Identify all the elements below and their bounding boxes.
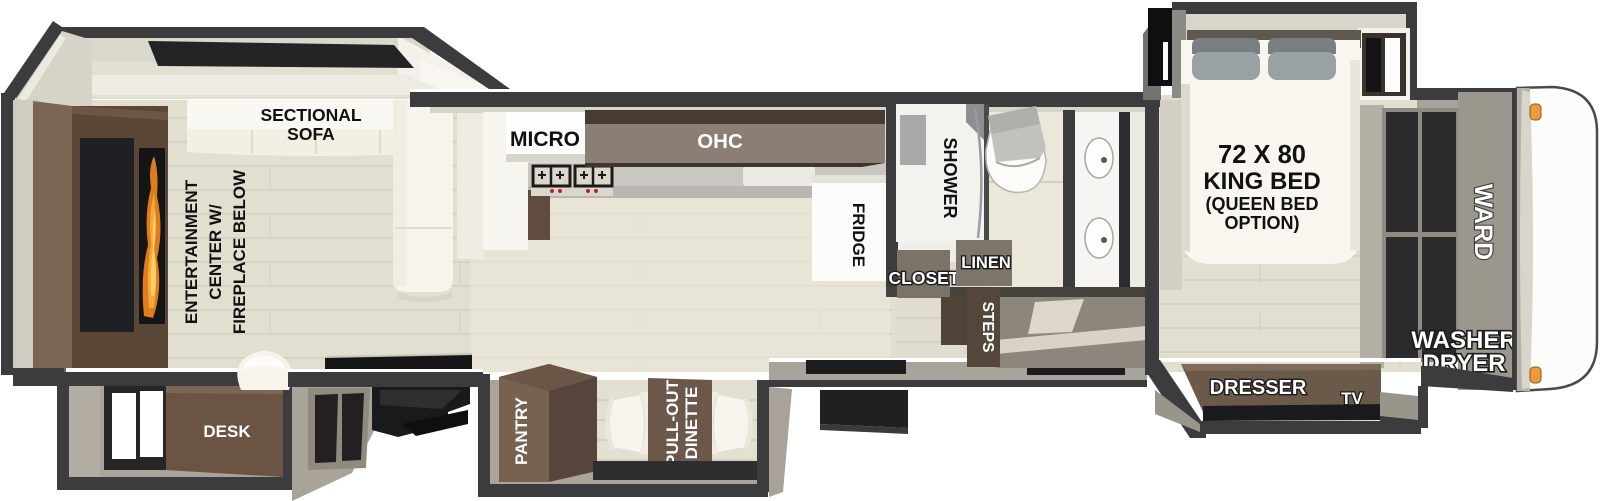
svg-text:SECTIONAL: SECTIONAL bbox=[260, 105, 361, 125]
svg-text:CLOSET: CLOSET bbox=[889, 268, 960, 288]
svg-text:72 X 80: 72 X 80 bbox=[1218, 141, 1306, 169]
svg-text:STEPS: STEPS bbox=[979, 302, 996, 353]
svg-text:CENTER W/: CENTER W/ bbox=[206, 204, 225, 300]
svg-text:SOFA: SOFA bbox=[287, 124, 335, 144]
svg-text:FRIDGE: FRIDGE bbox=[849, 203, 868, 267]
svg-text:ENTERTAINMENT: ENTERTAINMENT bbox=[182, 179, 201, 324]
svg-text:PANTRY: PANTRY bbox=[512, 396, 531, 465]
svg-text:FIREPLACE BELOW: FIREPLACE BELOW bbox=[230, 169, 249, 334]
svg-text:PULL-OUT: PULL-OUT bbox=[663, 379, 682, 466]
svg-text:DINETTE: DINETTE bbox=[682, 387, 701, 460]
svg-text:(QUEEN BED: (QUEEN BED bbox=[1205, 194, 1318, 214]
svg-text:WARD: WARD bbox=[1469, 184, 1497, 260]
svg-text:DRESSER: DRESSER bbox=[1210, 377, 1307, 399]
svg-text:LINEN: LINEN bbox=[961, 254, 1011, 272]
svg-text:OHC: OHC bbox=[697, 130, 743, 153]
svg-text:DESK: DESK bbox=[203, 422, 251, 441]
svg-text:TV: TV bbox=[1341, 389, 1363, 408]
svg-text:OPTION): OPTION) bbox=[1225, 213, 1300, 233]
svg-text:SHOWER: SHOWER bbox=[940, 138, 960, 219]
svg-text:MICRO: MICRO bbox=[510, 128, 580, 151]
svg-text:KING BED: KING BED bbox=[1203, 168, 1320, 195]
